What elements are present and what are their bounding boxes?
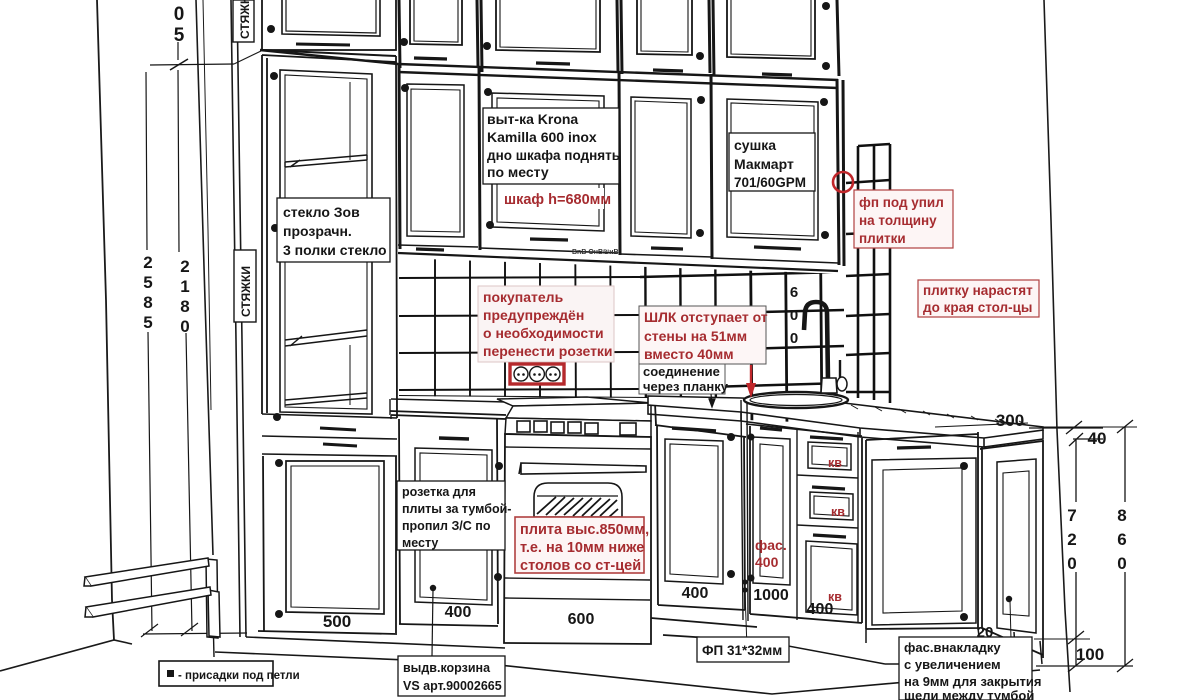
svg-text:шкаф h=680мм: шкаф h=680мм (504, 192, 611, 208)
svg-text:100: 100 (1076, 645, 1104, 664)
svg-text:покупатель: покупатель (483, 289, 564, 305)
svg-text:фас.: фас. (755, 537, 787, 553)
svg-text:ШЛК отступает от: ШЛК отступает от (644, 309, 768, 325)
svg-text:через планку: через планку (643, 379, 729, 394)
svg-text:СТЯЖКИ: СТЯЖКИ (239, 266, 253, 317)
svg-text:предупреждён: предупреждён (483, 307, 584, 323)
svg-text:600: 600 (568, 611, 595, 628)
svg-text:месту: месту (402, 536, 438, 550)
svg-text:0: 0 (1067, 554, 1076, 573)
svg-text:ФП 31*32мм: ФП 31*32мм (702, 643, 782, 658)
svg-text:2: 2 (143, 253, 152, 272)
svg-text:ВnВ ОнВ₪нВ: ВnВ ОнВ₪нВ (572, 249, 619, 256)
svg-text:выт-ка Krona: выт-ка Krona (487, 111, 578, 127)
svg-text:0: 0 (790, 330, 798, 347)
svg-text:кв: кв (828, 590, 842, 604)
svg-text:плитку нарастят: плитку нарастят (923, 283, 1033, 298)
svg-text:500: 500 (323, 612, 351, 631)
svg-text:8: 8 (180, 297, 189, 316)
svg-text:перенести розетки: перенести розетки (483, 343, 613, 359)
svg-text:на 9мм для закрытия: на 9мм для закрытия (904, 674, 1042, 689)
svg-text:7: 7 (1067, 506, 1076, 525)
svg-text:8: 8 (1117, 506, 1126, 525)
svg-text:0: 0 (790, 307, 798, 324)
svg-text:розетка для: розетка для (402, 485, 476, 499)
svg-text:выдв.корзина: выдв.корзина (403, 661, 491, 675)
svg-text:0: 0 (174, 4, 185, 25)
svg-text:5: 5 (174, 25, 185, 46)
svg-text:вместо 40мм: вместо 40мм (644, 346, 734, 362)
svg-text:300: 300 (996, 411, 1024, 430)
svg-text:8: 8 (143, 293, 152, 312)
svg-text:2: 2 (180, 257, 189, 276)
svg-text:щели между тумбой: щели между тумбой (904, 688, 1034, 700)
svg-text:0: 0 (1117, 554, 1126, 573)
svg-text:по месту: по месту (487, 164, 549, 180)
svg-text:плиты за тумбой-: плиты за тумбой- (402, 502, 511, 516)
svg-text:Макмарт: Макмарт (734, 156, 794, 172)
svg-text:до края стол-цы: до края стол-цы (923, 300, 1032, 315)
svg-text:столов со ст-цей: столов со ст-цей (520, 558, 641, 574)
svg-text:5: 5 (143, 313, 152, 332)
svg-text:6: 6 (1117, 530, 1126, 549)
svg-text:VS арт.90002665: VS арт.90002665 (403, 679, 502, 693)
svg-text:на толщину: на толщину (859, 213, 937, 228)
svg-text:40: 40 (1088, 429, 1107, 448)
svg-text:5: 5 (143, 273, 152, 292)
svg-text:Kamilla 600 inox: Kamilla 600 inox (487, 129, 597, 145)
svg-text:400: 400 (682, 585, 709, 602)
svg-text:дно шкафа поднять: дно шкафа поднять (487, 148, 620, 163)
svg-text:0: 0 (180, 317, 189, 336)
svg-text:400: 400 (445, 604, 472, 621)
svg-text:2: 2 (1067, 530, 1076, 549)
svg-text:3 полки стекло: 3 полки стекло (283, 242, 387, 258)
svg-text:плитки: плитки (859, 231, 906, 246)
svg-text:стекло Зов: стекло Зов (283, 204, 360, 220)
svg-text:т.е. на 10мм ниже: т.е. на 10мм ниже (520, 540, 644, 556)
svg-text:СТЯЖК: СТЯЖК (238, 0, 252, 39)
svg-text:1: 1 (180, 277, 189, 296)
svg-text:кв: кв (828, 456, 842, 470)
svg-text:6: 6 (790, 284, 798, 301)
svg-text:400: 400 (755, 554, 779, 570)
svg-text:кв: кв (831, 505, 845, 519)
svg-text:фас.внакладку: фас.внакладку (904, 640, 1001, 655)
svg-text:стены на 51мм: стены на 51мм (644, 328, 747, 344)
svg-text:сушка: сушка (734, 137, 776, 153)
svg-text:701/60GPM: 701/60GPM (734, 175, 806, 190)
svg-text:фп под упил: фп под упил (859, 195, 944, 210)
svg-text:пропил З/С по: пропил З/С по (402, 519, 491, 533)
svg-text:1000: 1000 (753, 587, 789, 604)
svg-text:- присадки под петли: - присадки под петли (178, 670, 300, 682)
svg-text:о необходимости: о необходимости (483, 325, 604, 341)
svg-text:прозрачн.: прозрачн. (283, 223, 352, 239)
svg-text:с увеличением: с увеличением (904, 657, 1001, 672)
svg-text:соединение: соединение (643, 364, 720, 379)
svg-text:плита выс.850мм,: плита выс.850мм, (520, 522, 649, 538)
